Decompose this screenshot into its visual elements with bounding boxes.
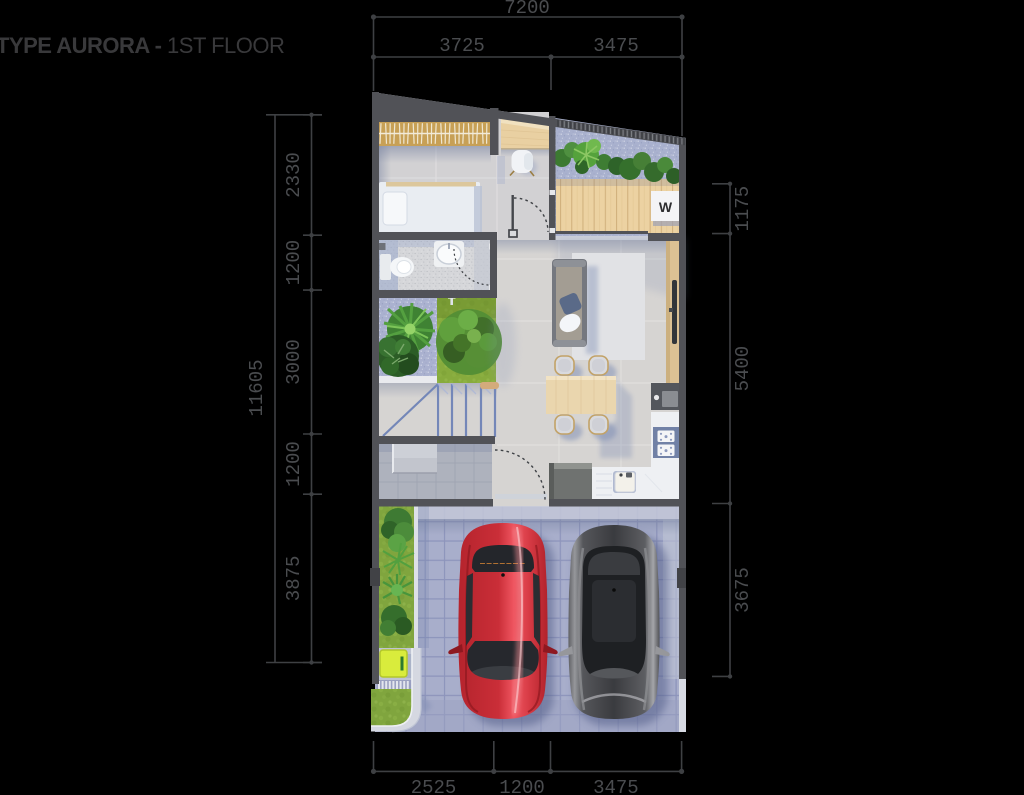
svg-text:11605: 11605 xyxy=(246,359,268,416)
svg-text:1200: 1200 xyxy=(499,777,545,795)
svg-text:3000: 3000 xyxy=(283,339,305,385)
svg-text:3675: 3675 xyxy=(732,567,754,613)
svg-text:5400: 5400 xyxy=(732,346,754,392)
svg-text:TYPE AURORA - 1ST FLOOR: TYPE AURORA - 1ST FLOOR xyxy=(0,33,284,58)
svg-text:3875: 3875 xyxy=(283,556,305,602)
svg-text:1200: 1200 xyxy=(283,240,305,286)
svg-text:1200: 1200 xyxy=(283,441,305,487)
svg-text:3475: 3475 xyxy=(593,35,639,57)
svg-text:7200: 7200 xyxy=(504,0,550,19)
svg-text:2525: 2525 xyxy=(411,777,457,795)
svg-text:3475: 3475 xyxy=(593,777,639,795)
svg-text:W: W xyxy=(659,199,673,215)
svg-text:1175: 1175 xyxy=(732,186,754,232)
svg-text:2330: 2330 xyxy=(283,152,305,198)
svg-text:3725: 3725 xyxy=(439,35,485,57)
